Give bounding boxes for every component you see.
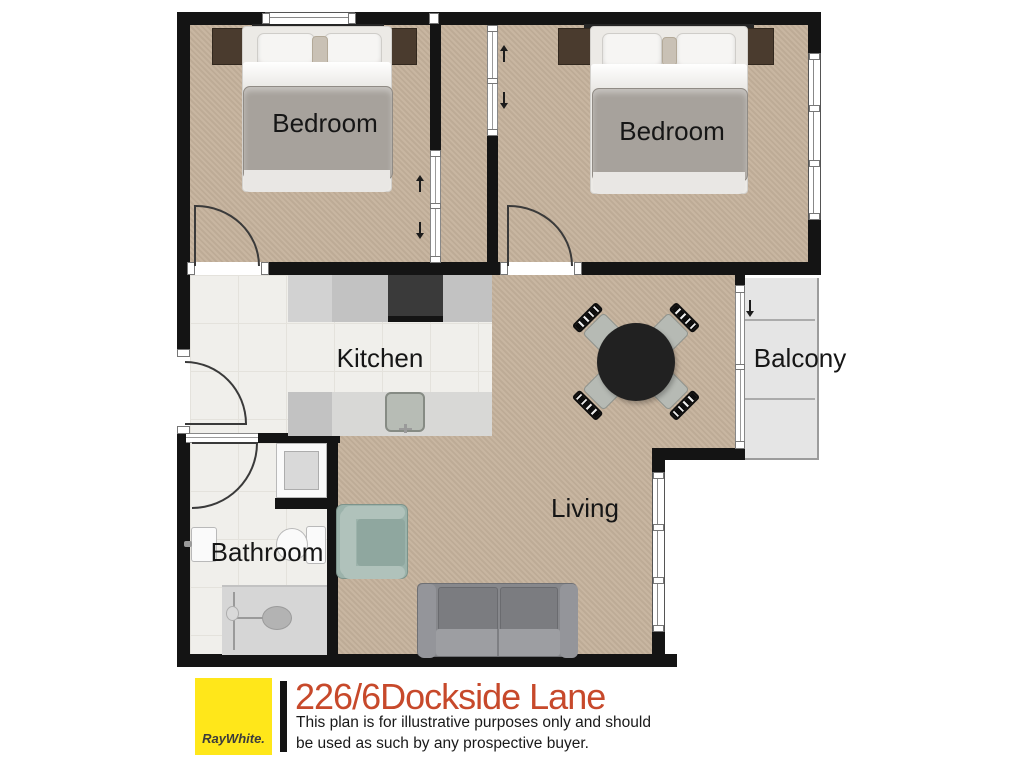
wall-hall-bed2	[487, 136, 498, 262]
window-jamb	[348, 13, 356, 24]
wall-balcony-south	[652, 448, 745, 460]
slide-arrow-down-icon	[416, 222, 424, 239]
wall-mid-band	[262, 262, 507, 275]
sofa-seat-divider	[497, 629, 499, 656]
bedroom2-label: Bedroom	[572, 116, 772, 147]
window-jamb	[809, 160, 820, 167]
shower-head	[226, 606, 239, 621]
window-jamb	[809, 105, 820, 112]
disclaimer-line-2: be used as such by any prospective buyer…	[296, 734, 651, 755]
slider-jamb	[430, 203, 441, 209]
address-title: 226/6Dockside Lane	[295, 676, 605, 718]
window-bedroom2	[808, 53, 821, 220]
stove	[388, 275, 443, 322]
slider-jamb	[735, 285, 745, 293]
disclaimer-line-1: This plan is for illustrative purposes o…	[296, 713, 651, 734]
stove-edge	[388, 316, 443, 322]
sofa-arm	[560, 584, 578, 658]
window-jamb	[809, 213, 820, 220]
sofa-arm	[418, 584, 436, 658]
hall-floor	[441, 25, 487, 262]
slider-jamb	[487, 25, 498, 32]
wall-mid-band	[575, 262, 821, 275]
window-jamb	[809, 53, 820, 60]
window-jamb	[653, 625, 664, 632]
slider-jamb	[735, 441, 745, 449]
kitchen-counter	[288, 275, 332, 322]
living-label: Living	[485, 493, 685, 524]
bedroom1-label: Bedroom	[225, 108, 425, 139]
floor-plan: Bedroom Bedroom Kitchen Bathroom Living …	[0, 0, 1024, 768]
kitchen-counter	[288, 392, 332, 436]
duct	[429, 13, 439, 24]
dining-table	[597, 323, 675, 401]
raywhite-logo: RayWhite.	[195, 678, 272, 755]
door-jamb	[177, 426, 190, 434]
disclaimer: This plan is for illustrative purposes o…	[296, 713, 651, 754]
bathroom-label: Bathroom	[167, 537, 367, 568]
sofa-back-cushion	[500, 587, 558, 631]
door-jamb	[261, 262, 269, 275]
shower-rail	[233, 592, 235, 650]
slider-jamb	[430, 256, 441, 263]
bed1-foot-sheet	[244, 170, 390, 192]
window-jamb	[653, 472, 664, 479]
balcony-divider	[745, 398, 815, 400]
bed2-foot-sheet	[593, 172, 745, 194]
wall-bed1-hall	[430, 12, 441, 153]
door-jamb	[177, 349, 190, 357]
kitchen-faucet	[399, 428, 412, 430]
sofa	[417, 583, 577, 657]
wall-nook	[275, 498, 338, 509]
window-jamb	[262, 13, 270, 24]
slide-arrow-up-icon	[500, 45, 508, 62]
kitchen-counter	[332, 275, 388, 322]
slider-jamb	[487, 129, 498, 136]
slide-arrow-up-icon	[416, 175, 424, 192]
footer-divider-bar	[280, 681, 287, 752]
door-jamb	[574, 262, 582, 275]
kitchen-counter	[443, 275, 492, 322]
slide-arrow-down-icon	[746, 300, 754, 317]
wall-right	[808, 12, 821, 53]
slider-jamb	[487, 78, 498, 84]
wall-left	[177, 12, 190, 356]
wall-living-east	[652, 632, 665, 667]
window-jamb	[653, 577, 664, 584]
slide-arrow-down-icon	[500, 92, 508, 109]
shower-drain	[262, 606, 292, 630]
sofa-back-cushion	[438, 587, 498, 631]
balcony-divider	[745, 319, 815, 321]
bed2-cushion	[662, 37, 677, 66]
slider-jamb	[430, 150, 441, 157]
window-jamb	[653, 524, 664, 531]
balcony-label: Balcony	[700, 343, 900, 374]
kitchen-label: Kitchen	[280, 343, 480, 374]
raywhite-logo-text: RayWhite.	[202, 731, 265, 755]
laundry-trough-basin	[284, 451, 319, 490]
